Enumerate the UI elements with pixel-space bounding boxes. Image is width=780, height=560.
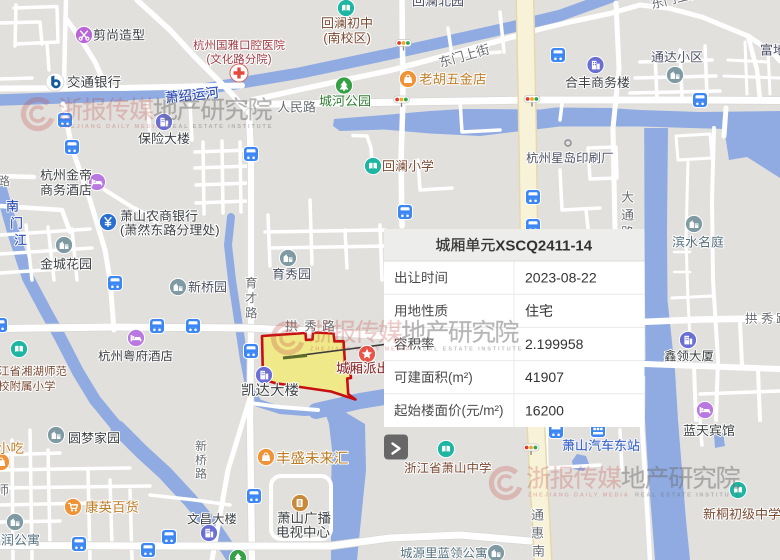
svg-text:41907: 41907 (525, 369, 564, 385)
svg-text:REAL ESTATE INSTITUTE: REAL ESTATE INSTITUTE (167, 124, 273, 130)
svg-text:REAL ESTATE INSTITUTE: REAL ESTATE INSTITUTE (417, 347, 523, 353)
svg-text:ZHEJIANG DAILY MEDIA: ZHEJIANG DAILY MEDIA (528, 493, 630, 499)
svg-text:ZHEJIANG DAILY MEDIA: ZHEJIANG DAILY MEDIA (60, 124, 162, 130)
svg-text:XSCQ2411-14: XSCQ2411-14 (495, 237, 592, 254)
svg-text:REAL ESTATE INSTITUTE: REAL ESTATE INSTITUTE (635, 493, 741, 499)
svg-text:(: ( (462, 403, 467, 418)
svg-text:): ) (215, 223, 219, 238)
svg-text:2.199958: 2.199958 (525, 336, 584, 352)
svg-text:ZHEJIANG DAILY MEDIA: ZHEJIANG DAILY MEDIA (310, 347, 412, 353)
svg-text:): ) (367, 31, 371, 46)
svg-text:): ) (268, 54, 272, 66)
svg-text:16200: 16200 (525, 402, 564, 418)
svg-text:(m²): (m²) (448, 370, 473, 385)
svg-text:/m²): /m²) (480, 403, 504, 418)
svg-text:2023-08-22: 2023-08-22 (525, 270, 597, 286)
